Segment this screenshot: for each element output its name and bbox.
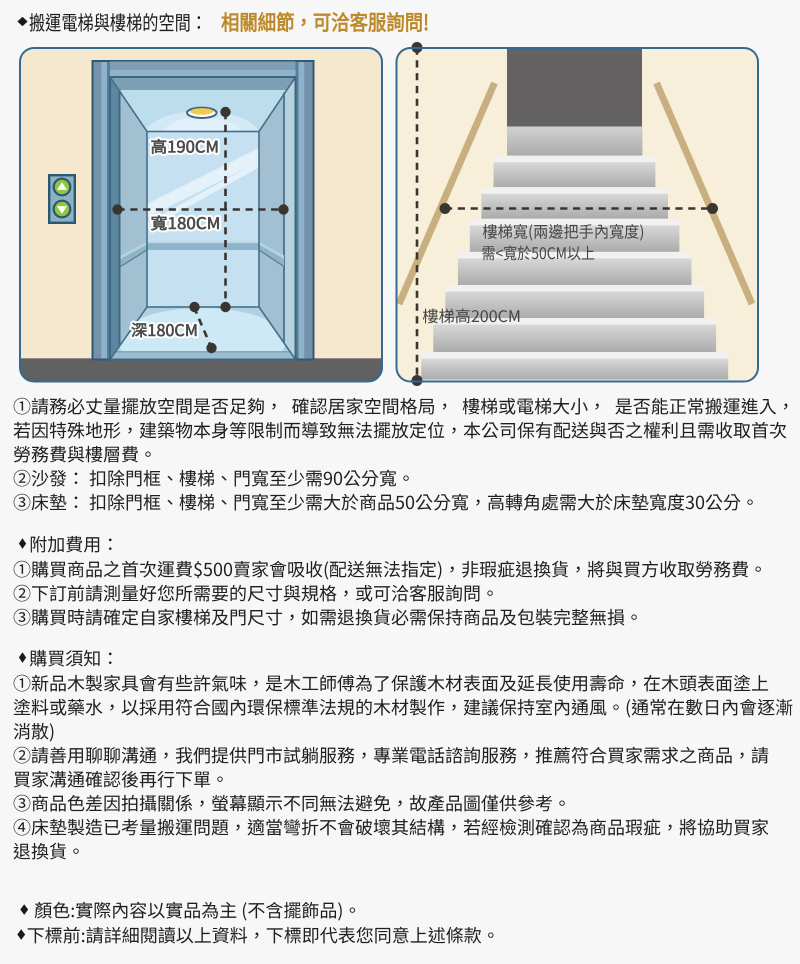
svg-text:樓梯高200CM: 樓梯高200CM [423, 303, 522, 327]
svg-text:高190CM: 高190CM [151, 134, 220, 158]
svg-text:寬180CM: 寬180CM [151, 210, 221, 234]
svg-text:樓梯寬(兩邊把手內寬度): 樓梯寬(兩邊把手內寬度) [483, 219, 645, 243]
svg-text:深180CM: 深180CM [131, 317, 198, 341]
svg-text:需<寬於50CM以上: 需<寬於50CM以上 [482, 240, 596, 264]
